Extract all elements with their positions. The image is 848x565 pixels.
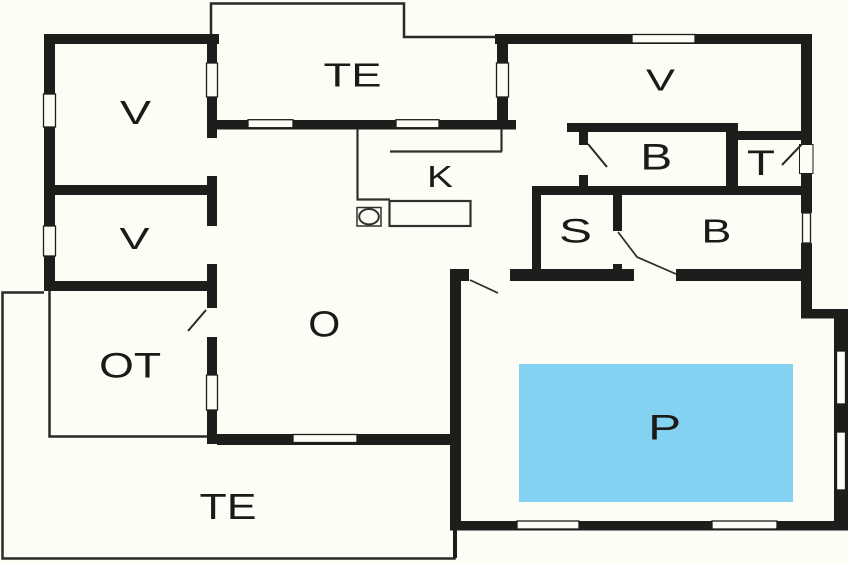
svg-text:B: B xyxy=(640,137,672,178)
svg-text:V: V xyxy=(646,62,675,97)
svg-text:S: S xyxy=(559,212,592,250)
svg-text:TE: TE xyxy=(324,57,382,94)
svg-text:OT: OT xyxy=(99,347,161,386)
svg-text:P: P xyxy=(648,408,681,447)
svg-text:B: B xyxy=(701,213,731,250)
svg-text:V: V xyxy=(120,221,150,256)
svg-text:T: T xyxy=(747,144,775,183)
svg-text:O: O xyxy=(308,303,340,344)
svg-text:K: K xyxy=(427,159,453,194)
svg-text:V: V xyxy=(120,94,151,131)
svg-text:TE: TE xyxy=(200,486,257,527)
